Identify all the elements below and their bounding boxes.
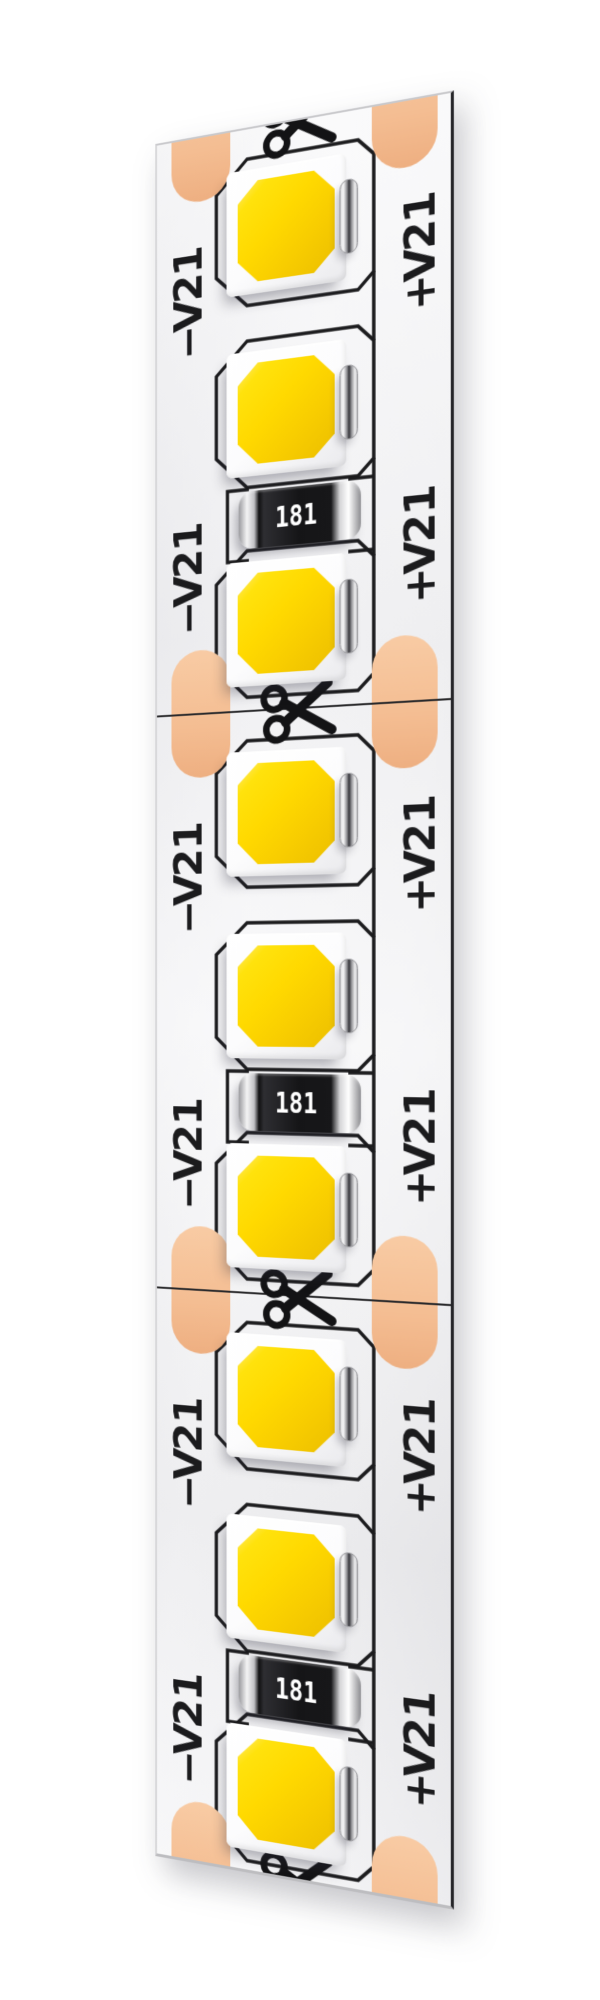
led-package (227, 1513, 347, 1653)
led-package (227, 1722, 347, 1867)
voltage-label-negative: 12V− (171, 1097, 204, 1207)
led-package (227, 747, 347, 877)
label-char: + (406, 1770, 433, 1811)
voltage-label-negative: 12V− (171, 1670, 204, 1783)
resistor: 181 (239, 480, 361, 550)
voltage-label-positive: 12V+ (402, 1396, 438, 1513)
led-chip (238, 1155, 335, 1261)
voltage-label-positive: 12V+ (402, 1088, 438, 1203)
label-char: + (406, 272, 433, 313)
led-contact-icon (340, 1765, 359, 1843)
label-char: + (406, 876, 433, 913)
led-chip (238, 1345, 335, 1455)
voltage-label-positive: 12V+ (402, 1688, 438, 1807)
label-char: − (176, 324, 201, 363)
led-contact-icon (340, 578, 359, 654)
voltage-label-negative: 12V− (171, 822, 204, 931)
label-char: − (176, 1175, 201, 1211)
led-chip (238, 945, 335, 1048)
led-contact-icon (340, 959, 359, 1034)
voltage-label-negative: 12V− (171, 1395, 204, 1507)
led-contact-icon (340, 1551, 359, 1628)
led-chip (238, 1736, 335, 1853)
resistor: 181 (239, 1073, 361, 1134)
label-char: + (406, 1169, 433, 1207)
voltage-label-positive: 12V+ (402, 190, 438, 309)
led-chip (238, 167, 335, 284)
led-package (227, 1332, 347, 1467)
label-char: − (176, 1748, 201, 1787)
label-char: − (176, 600, 201, 637)
voltage-label-positive: 12V+ (402, 484, 438, 601)
led-contact-icon (340, 1172, 359, 1248)
led-contact-icon (340, 772, 359, 847)
resistor-value: 181 (275, 1671, 317, 1711)
led-chip (238, 759, 335, 864)
resistor-value: 181 (275, 1086, 317, 1121)
voltage-label-negative: 12V− (171, 522, 204, 633)
led-contact-icon (340, 1366, 359, 1442)
led-contact-icon (340, 364, 359, 441)
voltage-label-negative: 12V− (171, 245, 204, 358)
resistor-value: 181 (275, 496, 317, 534)
led-strip: 181 12V− 12V+ 12V− 12V+ 181 12V− 12V+ 12… (155, 90, 454, 1909)
led-package (227, 339, 347, 479)
led-package (227, 932, 347, 1059)
led-chip (238, 1526, 335, 1639)
led-chip (238, 352, 335, 465)
led-package (227, 553, 347, 688)
label-char: − (176, 900, 201, 936)
label-char: − (176, 1473, 201, 1511)
led-package (227, 1143, 347, 1274)
led-package (227, 153, 347, 298)
led-chip (238, 566, 335, 675)
led-contact-icon (340, 177, 359, 255)
led-strip-product-image: 181 12V− 12V+ 12V− 12V+ 181 12V− 12V+ 12… (0, 0, 600, 2000)
label-char: + (406, 566, 433, 605)
voltage-label-positive: 12V+ (402, 794, 438, 909)
label-char: + (406, 1478, 433, 1518)
